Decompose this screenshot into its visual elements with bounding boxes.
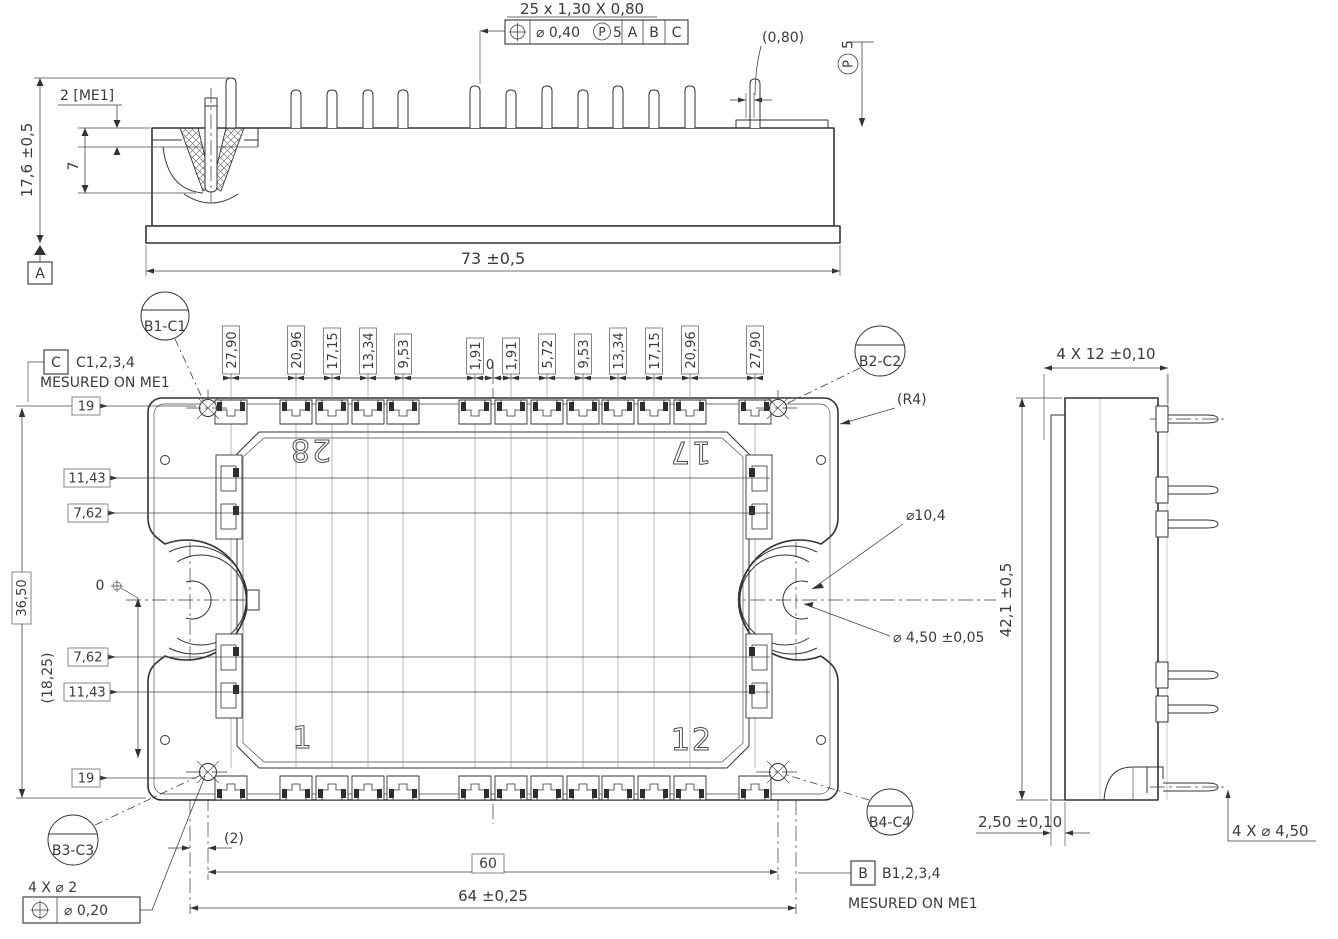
- svg-text:5: 5: [841, 40, 857, 49]
- dim-label: 4 X 12 ±0,10: [1056, 345, 1155, 363]
- fcf2-tolerance: ⌀ 0,20: [64, 903, 108, 919]
- balloon-label: B1-C1: [144, 319, 186, 335]
- datum-c-note: MESURED ON ME1: [40, 375, 170, 391]
- engineering-drawing-page: 2 [ME1] 7 17,6 ±0,5 A: [0, 0, 1338, 939]
- pin-root: [1156, 696, 1168, 722]
- pin-number-12: 12: [671, 723, 713, 758]
- chain-label: 13,34: [362, 332, 377, 369]
- pin: [327, 90, 337, 128]
- row-label: 19: [78, 772, 95, 787]
- row-label: 19: [78, 400, 95, 415]
- pin: [226, 78, 236, 128]
- feature-control-frame: [505, 20, 688, 44]
- dim-label: 17,6 ±0,5: [18, 123, 36, 198]
- chain-label: 17,15: [326, 332, 341, 369]
- fcf-datum-a: A: [628, 25, 638, 41]
- pin-number-17: 17: [669, 434, 711, 469]
- chain-label: 17,15: [648, 332, 663, 369]
- datum-a-label: A: [35, 266, 45, 282]
- chain-label: 9,53: [397, 340, 412, 369]
- ref-dim-label: (18,25): [40, 652, 56, 703]
- pin: [291, 90, 301, 128]
- balloon-label: B4-C4: [869, 815, 911, 831]
- row-label: 11,43: [68, 472, 105, 487]
- row-label: 11,43: [68, 686, 105, 701]
- datum-c-features: C1,2,3,4: [76, 355, 135, 371]
- dim-label: 2,50 ±0,10: [978, 813, 1062, 831]
- chain-label: 20,96: [684, 331, 699, 368]
- pin-root: [1156, 406, 1168, 432]
- baseplate-flange: [146, 226, 840, 243]
- pin-root: [1156, 511, 1168, 537]
- pin: [506, 90, 516, 128]
- radius-label: (R4): [897, 392, 927, 408]
- dia-label: ⌀ 4,50 ±0,05: [893, 630, 984, 646]
- pin-row-note: 25 x 1,30 X 0,80: [520, 0, 644, 18]
- svg-text:P: P: [842, 60, 857, 68]
- datum-c-label: C: [51, 355, 61, 371]
- chain-label: 27,90: [749, 331, 764, 368]
- dim-label: 42,1 ±0,5: [997, 563, 1015, 638]
- pin: [542, 86, 552, 128]
- fcf-projected-value: 5: [613, 25, 622, 41]
- row-label-zero: 0: [96, 578, 105, 594]
- pin-number-1: 1: [292, 721, 313, 756]
- module-body-section: [152, 128, 834, 226]
- dim-label: 60: [479, 856, 497, 872]
- dim-label: 64 ±0,25: [458, 887, 528, 905]
- pin: [363, 90, 373, 128]
- svg-text:P: P: [598, 25, 605, 39]
- pin-root: [1156, 662, 1168, 688]
- pin-number-28: 28: [289, 432, 331, 467]
- chain-label: 13,34: [612, 332, 627, 369]
- datum-b-label: B: [858, 866, 868, 882]
- dia-label: ⌀10,4: [906, 508, 946, 524]
- fcf-datum-b: B: [649, 25, 659, 41]
- drawing-canvas: 2 [ME1] 7 17,6 ±0,5 A: [0, 0, 1338, 939]
- datum-b-note: MESURED ON ME1: [848, 896, 978, 912]
- chain-label: 1,91: [469, 342, 484, 371]
- pin-root: [1156, 477, 1168, 503]
- pin: [649, 90, 659, 128]
- pin: [685, 86, 695, 128]
- dim-label: 4 X ⌀ 4,50: [1232, 822, 1309, 840]
- dim-label: 73 ±0,5: [461, 249, 525, 268]
- dim-label: (0,80): [762, 30, 804, 46]
- chain-label: 27,90: [225, 331, 240, 368]
- pin: [578, 90, 588, 128]
- chain-label: 20,96: [290, 331, 305, 368]
- pin: [613, 86, 623, 128]
- holes-note: 4 X ⌀ 2: [28, 880, 77, 896]
- chain-label-zero: 0: [486, 358, 494, 373]
- chain-label: 1,91: [505, 342, 520, 371]
- balloon-label: B2-C2: [859, 354, 901, 370]
- datum-b-features: B1,2,3,4: [882, 866, 941, 882]
- dim-label: 7: [66, 162, 82, 171]
- height-ref-label: 36,50: [15, 579, 30, 616]
- chain-label: 5,72: [541, 340, 556, 369]
- row-label: 7,62: [74, 651, 103, 666]
- pin: [470, 86, 480, 128]
- pin: [398, 90, 408, 128]
- chain-label: 9,53: [577, 340, 592, 369]
- dim-label: (2): [224, 831, 244, 847]
- left-center-tab: [247, 590, 259, 610]
- dim-label: 2 [ME1]: [60, 88, 114, 104]
- fcf-tolerance: ⌀ 0,40: [536, 25, 580, 41]
- fcf-datum-c: C: [672, 25, 682, 41]
- balloon-label: B3-C3: [52, 843, 94, 859]
- row-label: 7,62: [74, 507, 103, 522]
